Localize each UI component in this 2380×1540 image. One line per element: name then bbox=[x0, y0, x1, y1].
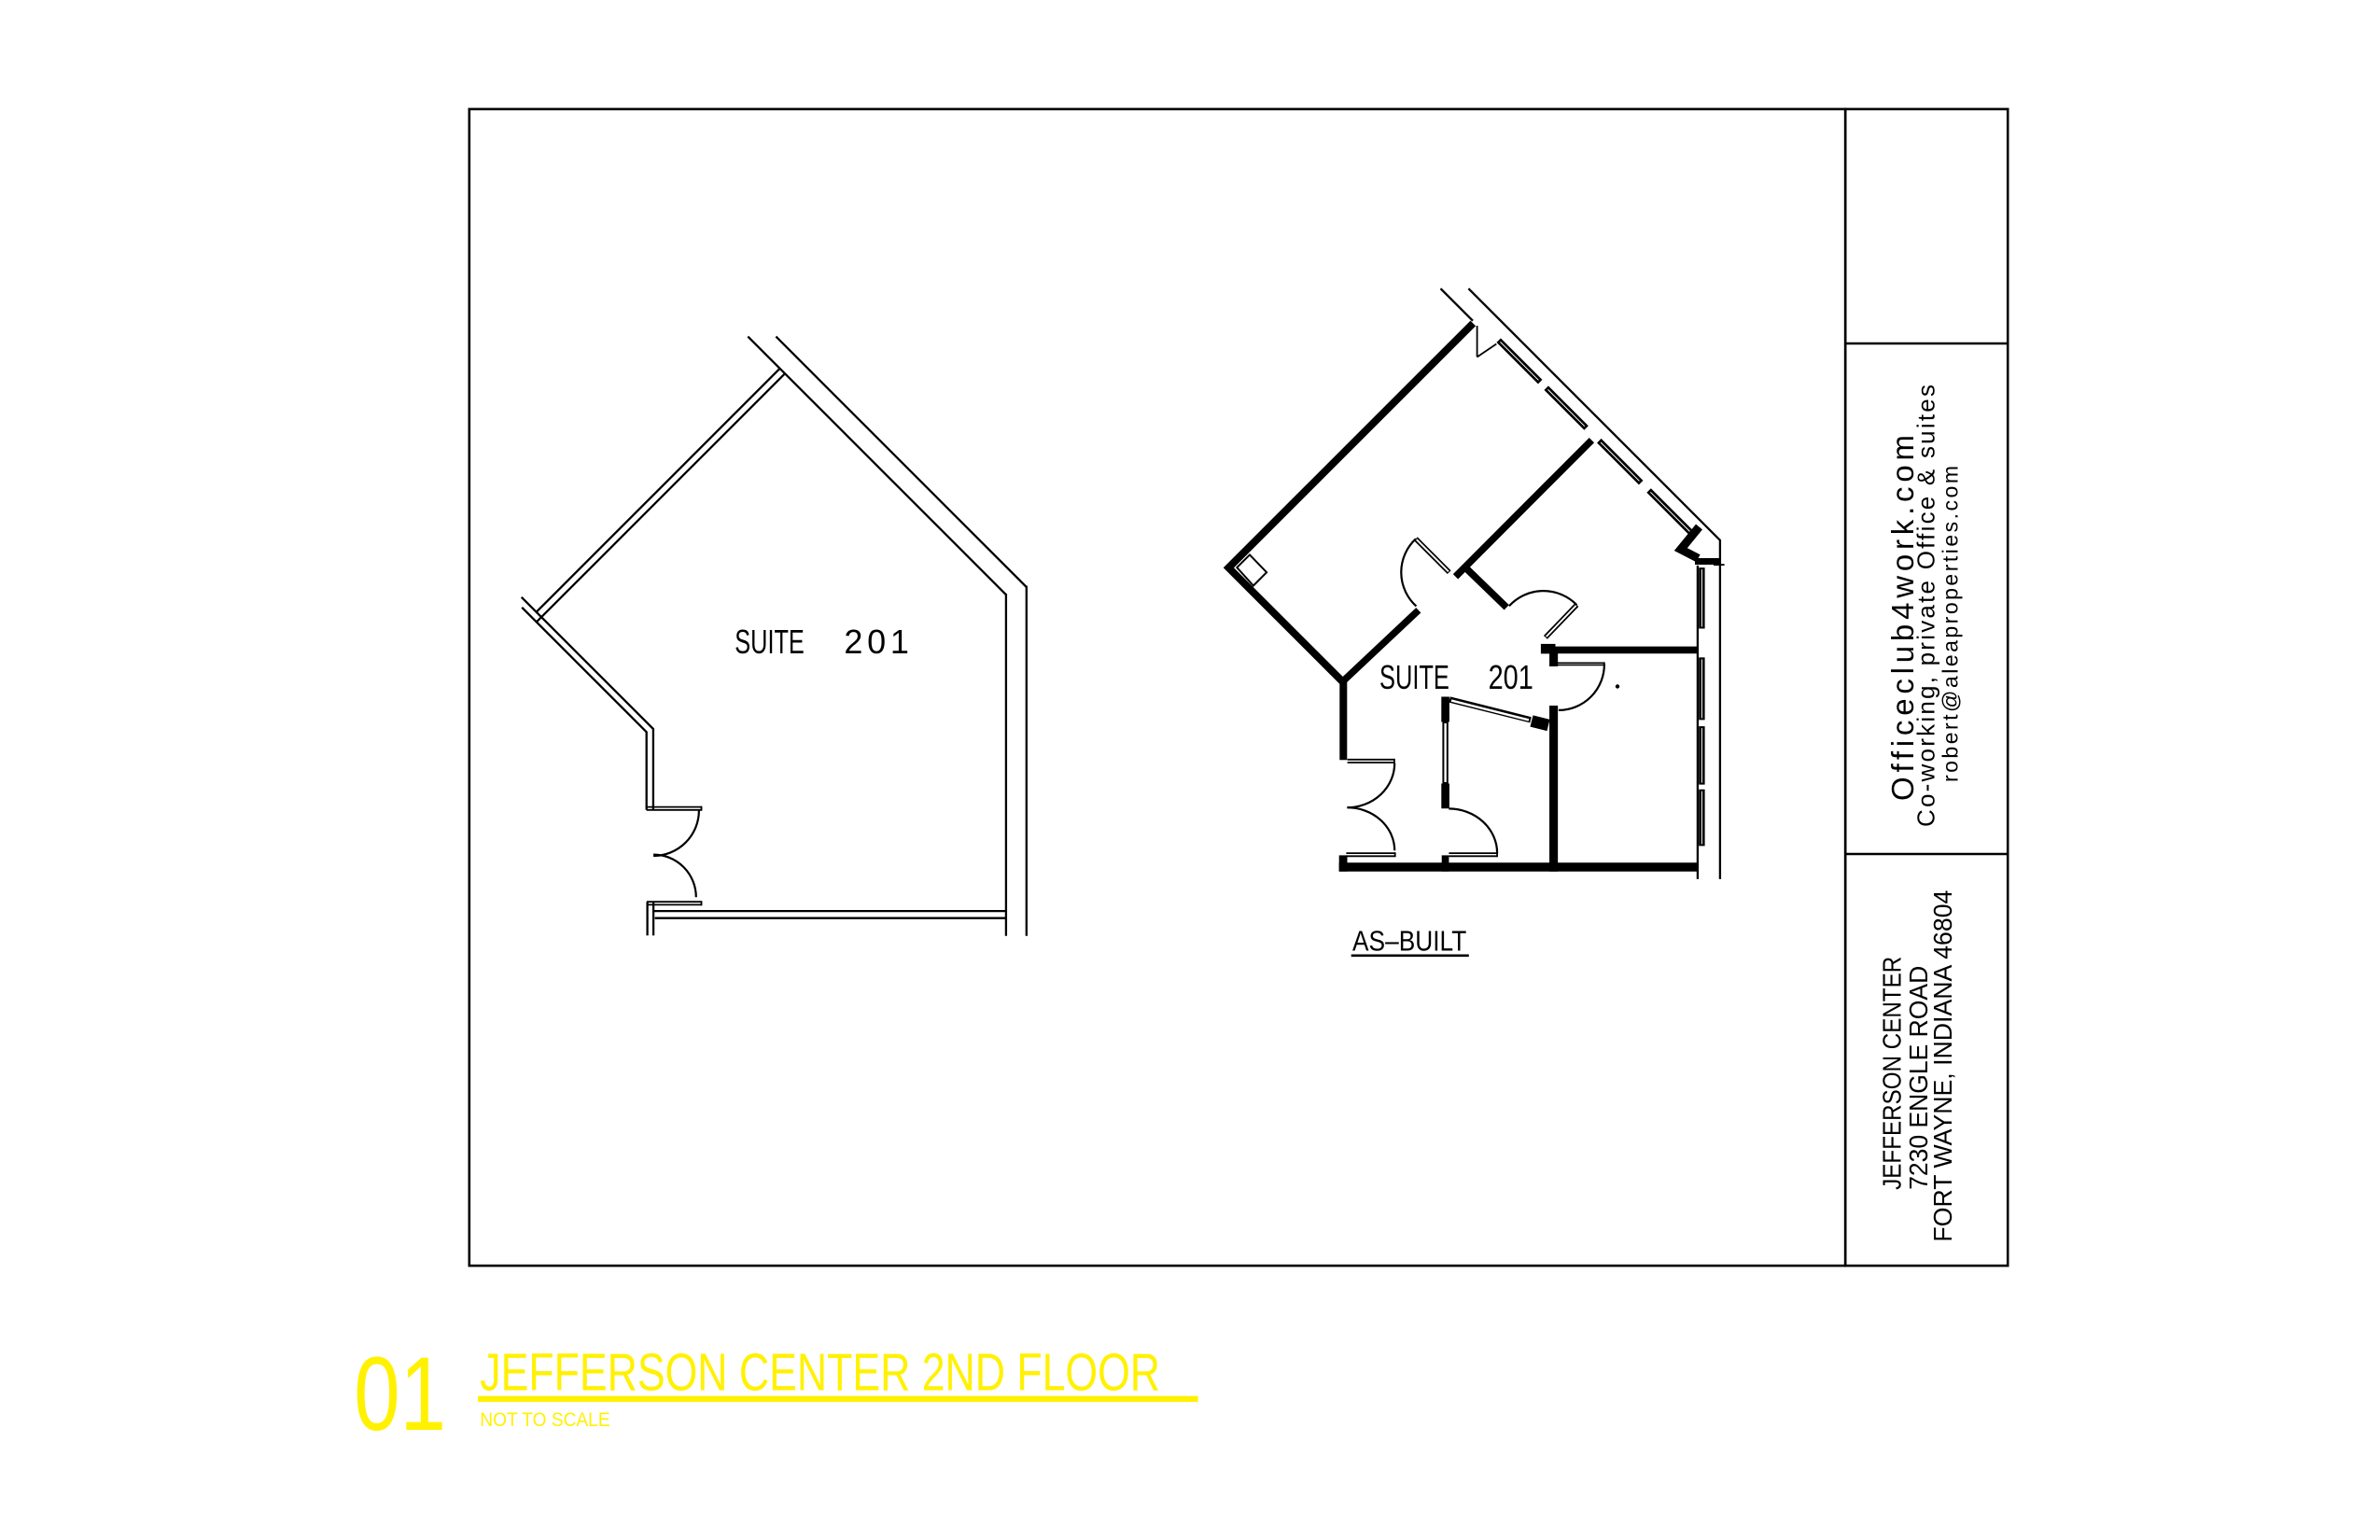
svg-text:AS–BUILT: AS–BUILT bbox=[1352, 925, 1466, 958]
svg-text:SUITE: SUITE bbox=[1379, 658, 1449, 696]
svg-text:JEFFERSON CENTER 2ND FLOOR: JEFFERSON CENTER 2ND FLOOR bbox=[480, 1342, 1160, 1402]
svg-text:01: 01 bbox=[354, 1336, 446, 1452]
svg-text:201: 201 bbox=[844, 623, 909, 661]
svg-text:JEFFERSON CENTER: JEFFERSON CENTER bbox=[1877, 957, 1906, 1190]
svg-text:201: 201 bbox=[1489, 658, 1533, 696]
svg-text:Co-working, private Office & s: Co-working, private Office & suites bbox=[1912, 385, 1940, 827]
svg-text:SUITE: SUITE bbox=[735, 623, 805, 661]
svg-text:NOT TO SCALE: NOT TO SCALE bbox=[480, 1409, 609, 1431]
svg-text:FORT WAYNE, INDIANA 46804: FORT WAYNE, INDIANA 46804 bbox=[1928, 890, 1957, 1242]
